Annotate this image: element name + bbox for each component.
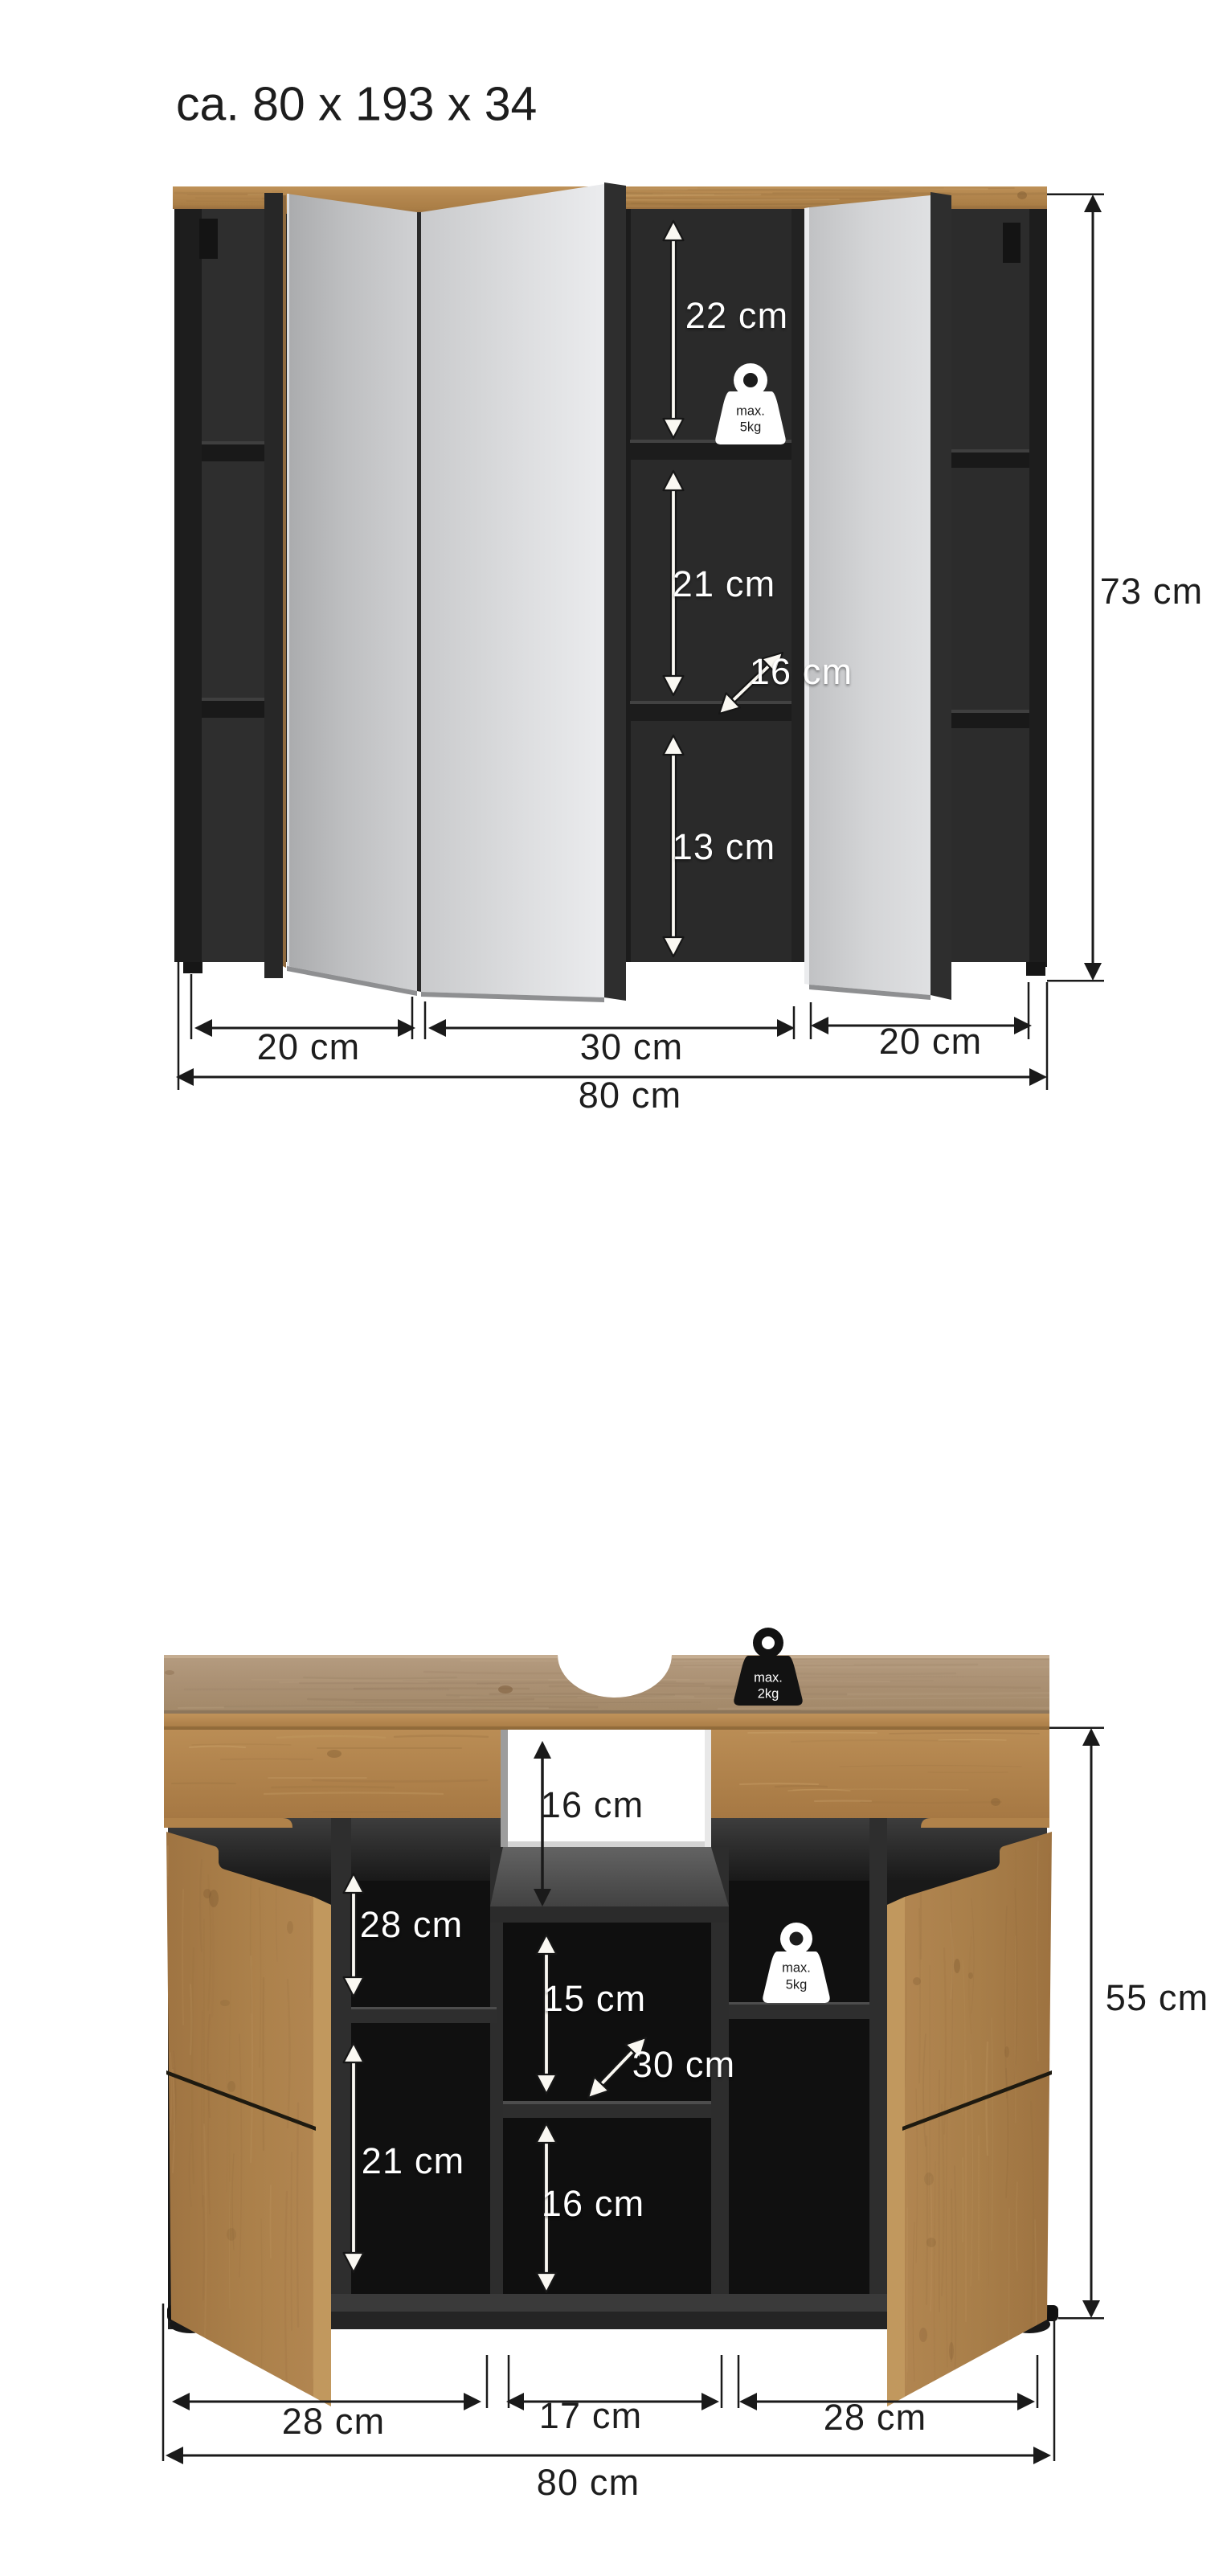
svg-text:28 cm: 28 cm [824, 2397, 927, 2438]
svg-text:5kg: 5kg [786, 1977, 808, 1992]
svg-text:73 cm: 73 cm [1100, 571, 1204, 612]
svg-text:55 cm: 55 cm [1106, 1977, 1209, 2018]
svg-text:20 cm: 20 cm [879, 1021, 983, 1062]
svg-text:max.: max. [754, 1670, 783, 1685]
svg-text:16 cm: 16 cm [542, 2183, 645, 2224]
svg-text:16 cm: 16 cm [541, 1784, 644, 1825]
svg-text:5kg: 5kg [740, 420, 762, 434]
svg-text:80 cm: 80 cm [537, 2462, 640, 2503]
svg-text:30 cm: 30 cm [632, 2044, 736, 2085]
svg-text:16 cm: 16 cm [750, 651, 853, 692]
svg-text:2kg: 2kg [758, 1686, 779, 1701]
svg-text:28 cm: 28 cm [360, 1904, 464, 1945]
svg-text:30 cm: 30 cm [580, 1026, 684, 1067]
svg-text:max.: max. [782, 1960, 811, 1975]
svg-text:13 cm: 13 cm [673, 826, 776, 867]
svg-text:17 cm: 17 cm [539, 2395, 643, 2436]
svg-text:21 cm: 21 cm [362, 2140, 465, 2181]
svg-text:80 cm: 80 cm [579, 1075, 682, 1116]
svg-text:28 cm: 28 cm [282, 2401, 386, 2442]
svg-text:20 cm: 20 cm [257, 1026, 361, 1067]
svg-text:max.: max. [736, 403, 765, 418]
svg-text:15 cm: 15 cm [543, 1978, 647, 2019]
svg-text:21 cm: 21 cm [673, 563, 776, 604]
svg-text:ca. 80 x 193 x 34: ca. 80 x 193 x 34 [176, 78, 537, 131]
svg-text:22 cm: 22 cm [685, 295, 789, 336]
